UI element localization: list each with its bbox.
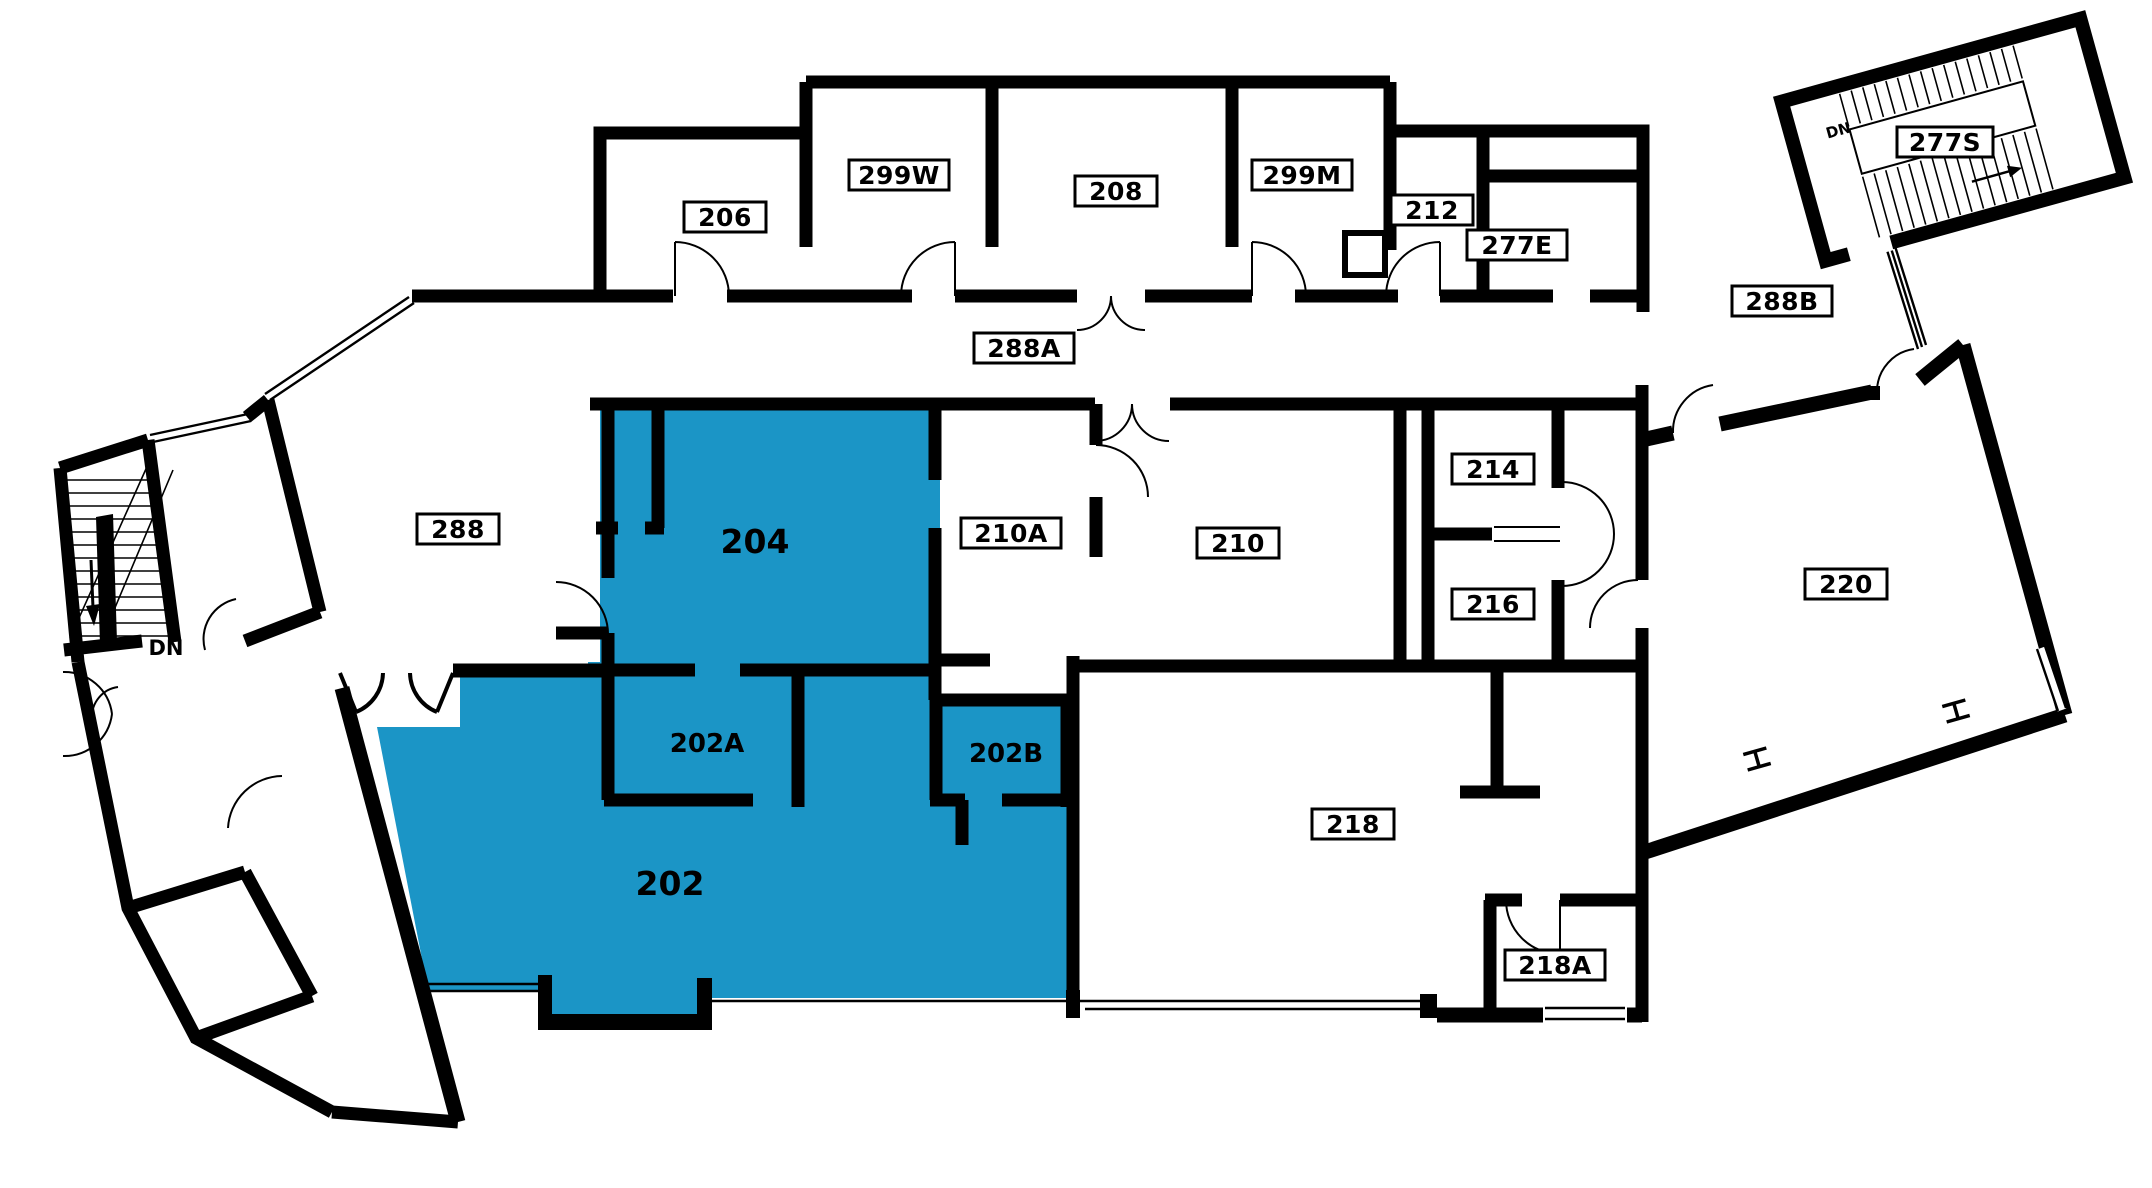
room-label-277s: 277S [1897,127,1993,157]
svg-text:288B: 288B [1745,287,1818,316]
svg-text:214: 214 [1466,455,1520,484]
svg-text:206: 206 [698,203,752,232]
svg-text:277S: 277S [1909,128,1981,157]
room-label-210: 210 [1197,528,1279,558]
svg-text:216: 216 [1466,590,1520,619]
room-label-288a: 288A [974,333,1074,363]
room-label-288b: 288B [1732,286,1832,316]
svg-text:208: 208 [1089,177,1143,206]
svg-text:299M: 299M [1262,161,1341,190]
stairwell-277s-entrance-gap [1849,242,1891,254]
room-label-202b: 202B [969,739,1043,769]
room-label-299w: 299W [849,160,949,190]
room-label-299m: 299M [1252,160,1352,190]
svg-text:288A: 288A [987,334,1061,363]
svg-text:220: 220 [1819,570,1873,599]
svg-text:218: 218 [1326,810,1380,839]
room-label-218: 218 [1312,809,1394,839]
floor-plan-canvas: DN 206 299W 208 299M 212 277E 277S 288A … [0,0,2152,1188]
room-label-206: 206 [684,202,766,232]
room-label-218a: 218A [1505,950,1605,980]
room-label-216: 216 [1452,589,1534,619]
room-label-210a: 210A [961,518,1061,548]
room-202-highlight[interactable] [377,662,1073,1018]
room-label-202a: 202A [670,729,744,759]
svg-text:212: 212 [1405,196,1459,225]
room-label-212: 212 [1391,195,1473,225]
room-label-277e: 277E [1467,230,1567,260]
floor-plan: DN 206 299W 208 299M 212 277E 277S 288A … [0,0,2152,1188]
room-label-288: 288 [417,514,499,544]
room-label-214: 214 [1452,454,1534,484]
svg-text:277E: 277E [1481,231,1552,260]
room-label-202: 202 [636,864,705,903]
room-label-220: 220 [1805,569,1887,599]
svg-text:299W: 299W [858,161,940,190]
svg-text:288: 288 [431,515,485,544]
room-label-208: 208 [1075,176,1157,206]
svg-text:210: 210 [1211,529,1265,558]
svg-text:210A: 210A [974,519,1048,548]
room-label-204: 204 [721,522,790,561]
dn-label-left: DN [148,636,183,660]
svg-text:218A: 218A [1518,951,1592,980]
